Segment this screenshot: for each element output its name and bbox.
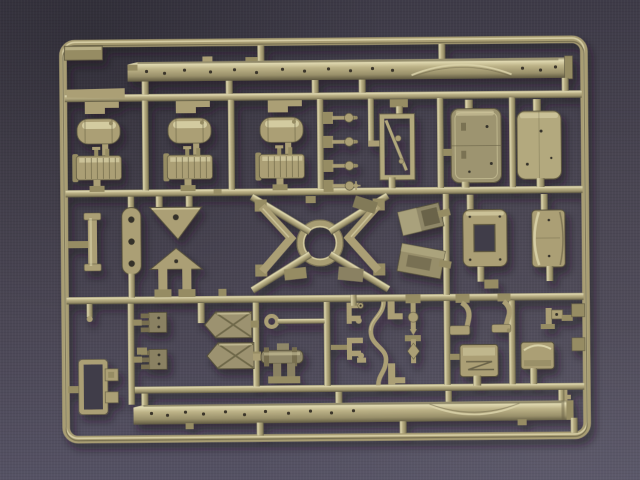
tank-column-1 (72, 102, 122, 192)
braced-frame-part (379, 99, 415, 188)
grab-handle-2 (323, 136, 358, 148)
runner-h4 (128, 383, 584, 394)
winch-assembly (253, 343, 303, 383)
ladder-frame-part (68, 304, 119, 415)
small-plate-2 (338, 267, 364, 282)
p-bracket (541, 308, 573, 329)
tag-highlight (65, 47, 101, 50)
chassis-rail-lower (133, 390, 577, 437)
cross-braced-panel-1 (205, 312, 259, 338)
sprue (63, 38, 587, 441)
seat-base-2 (521, 342, 554, 384)
i-beam-bracket (68, 213, 102, 271)
frame-tab-1 (572, 304, 585, 317)
chassis-rail-upper (127, 53, 572, 82)
stowage-box-1 (443, 99, 502, 188)
roof-bracket (150, 248, 202, 297)
stowage-box-2 (517, 99, 562, 187)
knob-pin-2 (405, 335, 421, 363)
step-bar-part (67, 88, 125, 99)
tank-column-2 (163, 101, 213, 191)
sprue-gate (257, 45, 264, 61)
knob-pin-1 (405, 294, 420, 335)
frame-tab-2 (572, 338, 585, 351)
tank-column-3 (255, 100, 305, 190)
comb-bracket-1 (133, 312, 167, 332)
curved-cover-part (532, 194, 566, 281)
l-bracket-upper (388, 301, 403, 319)
sprue-gate (198, 303, 205, 323)
hole-plate-part (122, 197, 142, 298)
open-frame-part (463, 194, 508, 288)
c-bracket-2 (331, 338, 366, 363)
tie-rod-part (266, 315, 325, 327)
triangle-bracket-down (150, 196, 202, 239)
l-bracket-lower (388, 363, 405, 384)
seat-base-1 (450, 344, 498, 385)
grab-handle-3 (323, 160, 358, 172)
sprue-gate (438, 44, 445, 60)
photo-of-model-sprue (0, 0, 640, 480)
c-bracket-1 (347, 303, 364, 324)
sprue-scene (0, 0, 640, 480)
sprue-gate (350, 295, 356, 306)
grab-handle-1 (323, 112, 358, 124)
cross-braced-panel-2 (207, 343, 261, 369)
